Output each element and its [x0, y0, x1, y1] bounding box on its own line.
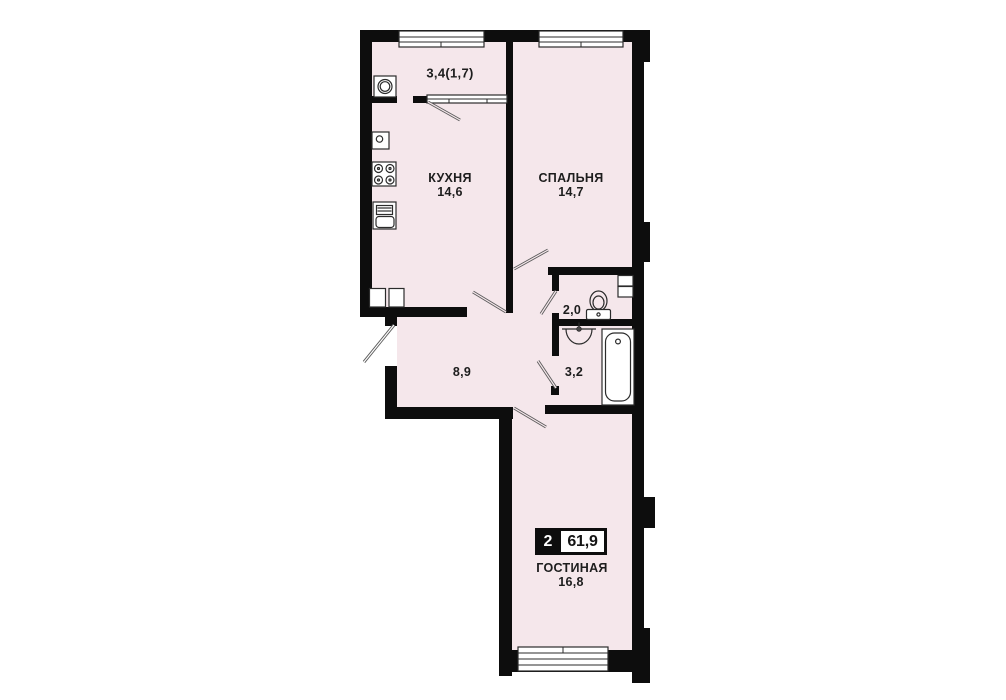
floor-plan-canvas: 3,4(1,7) КУХНЯ 14,6 СПАЛЬНЯ 14,7 2,0 3,2…: [0, 0, 1006, 700]
apartment-summary-badge: 2 61,9: [535, 528, 607, 555]
balcony-window: [399, 31, 484, 47]
kitchen-sink-icon: [373, 202, 396, 229]
hallway-area-label: 8,9: [453, 365, 471, 379]
bathroom-area-label: 3,2: [565, 365, 583, 379]
room-count-badge: 2: [535, 528, 561, 555]
wc-area-label: 2,0: [563, 303, 581, 317]
floor-plan-drawing: [0, 0, 1006, 700]
party-wall-notches: [644, 62, 655, 628]
kitchen-name-label: КУХНЯ: [428, 171, 472, 185]
living-room-window: [518, 647, 608, 671]
bathtub-icon: [602, 329, 634, 405]
total-area-badge: 61,9: [561, 531, 604, 552]
living-room-area-label: 16,8: [558, 575, 584, 589]
stove-icon: [372, 162, 396, 186]
living-room-name-label: ГОСТИНАЯ: [536, 561, 607, 575]
bedroom-window: [539, 31, 623, 47]
washing-machine-icon: [374, 76, 396, 97]
entrance-door-swing: [364, 325, 394, 362]
counter-appliance-icon: [372, 132, 389, 149]
bedroom-name-label: СПАЛЬНЯ: [538, 171, 603, 185]
balcony-partition-window: [427, 95, 507, 103]
vent-shaft-icon: [618, 276, 633, 298]
kitchen-area-label: 14,6: [437, 185, 463, 199]
balcony-area-label: 3,4(1,7): [426, 66, 473, 81]
bedroom-area-label: 14,7: [558, 185, 584, 199]
